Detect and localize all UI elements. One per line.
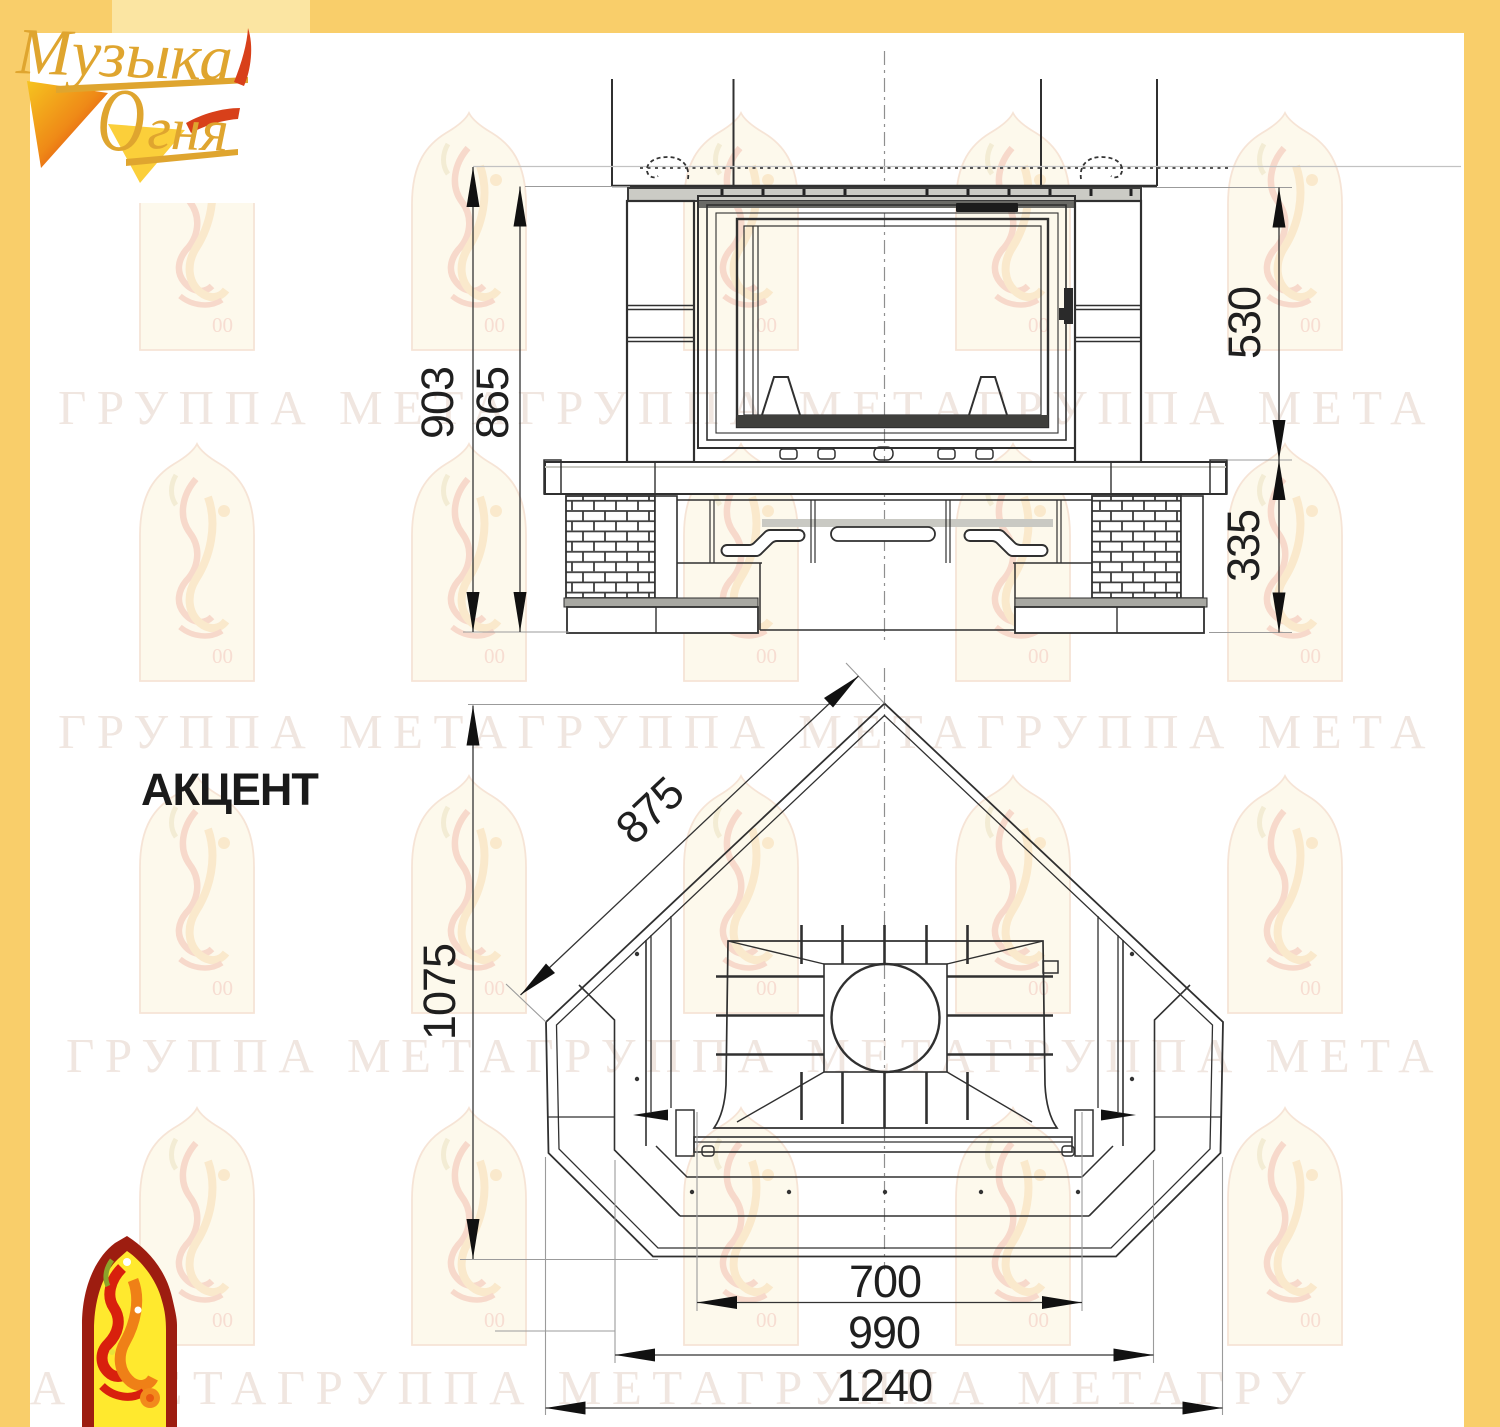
svg-text:1075: 1075 [414, 944, 465, 1040]
svg-text:700: 700 [849, 1256, 921, 1307]
svg-text:903: 903 [412, 367, 463, 439]
svg-text:530: 530 [1219, 287, 1270, 359]
svg-text:865: 865 [467, 367, 518, 439]
svg-text:1240: 1240 [836, 1360, 932, 1411]
svg-text:ППА МЕТАГРУППА МЕТАГРУППА МЕТА: ППА МЕТАГРУППА МЕТАГРУППА МЕТАГРУ [0, 1360, 1316, 1415]
svg-text:335: 335 [1218, 510, 1269, 582]
svg-text:ГРУППА МЕТАГРУППА МЕТАГРУППА М: ГРУППА МЕТАГРУППА МЕТАГРУППА МЕТА [58, 704, 1436, 759]
svg-text:990: 990 [848, 1307, 920, 1358]
svg-text:О: О [97, 70, 145, 170]
svg-text:АКЦЕНТ: АКЦЕНТ [141, 764, 318, 815]
